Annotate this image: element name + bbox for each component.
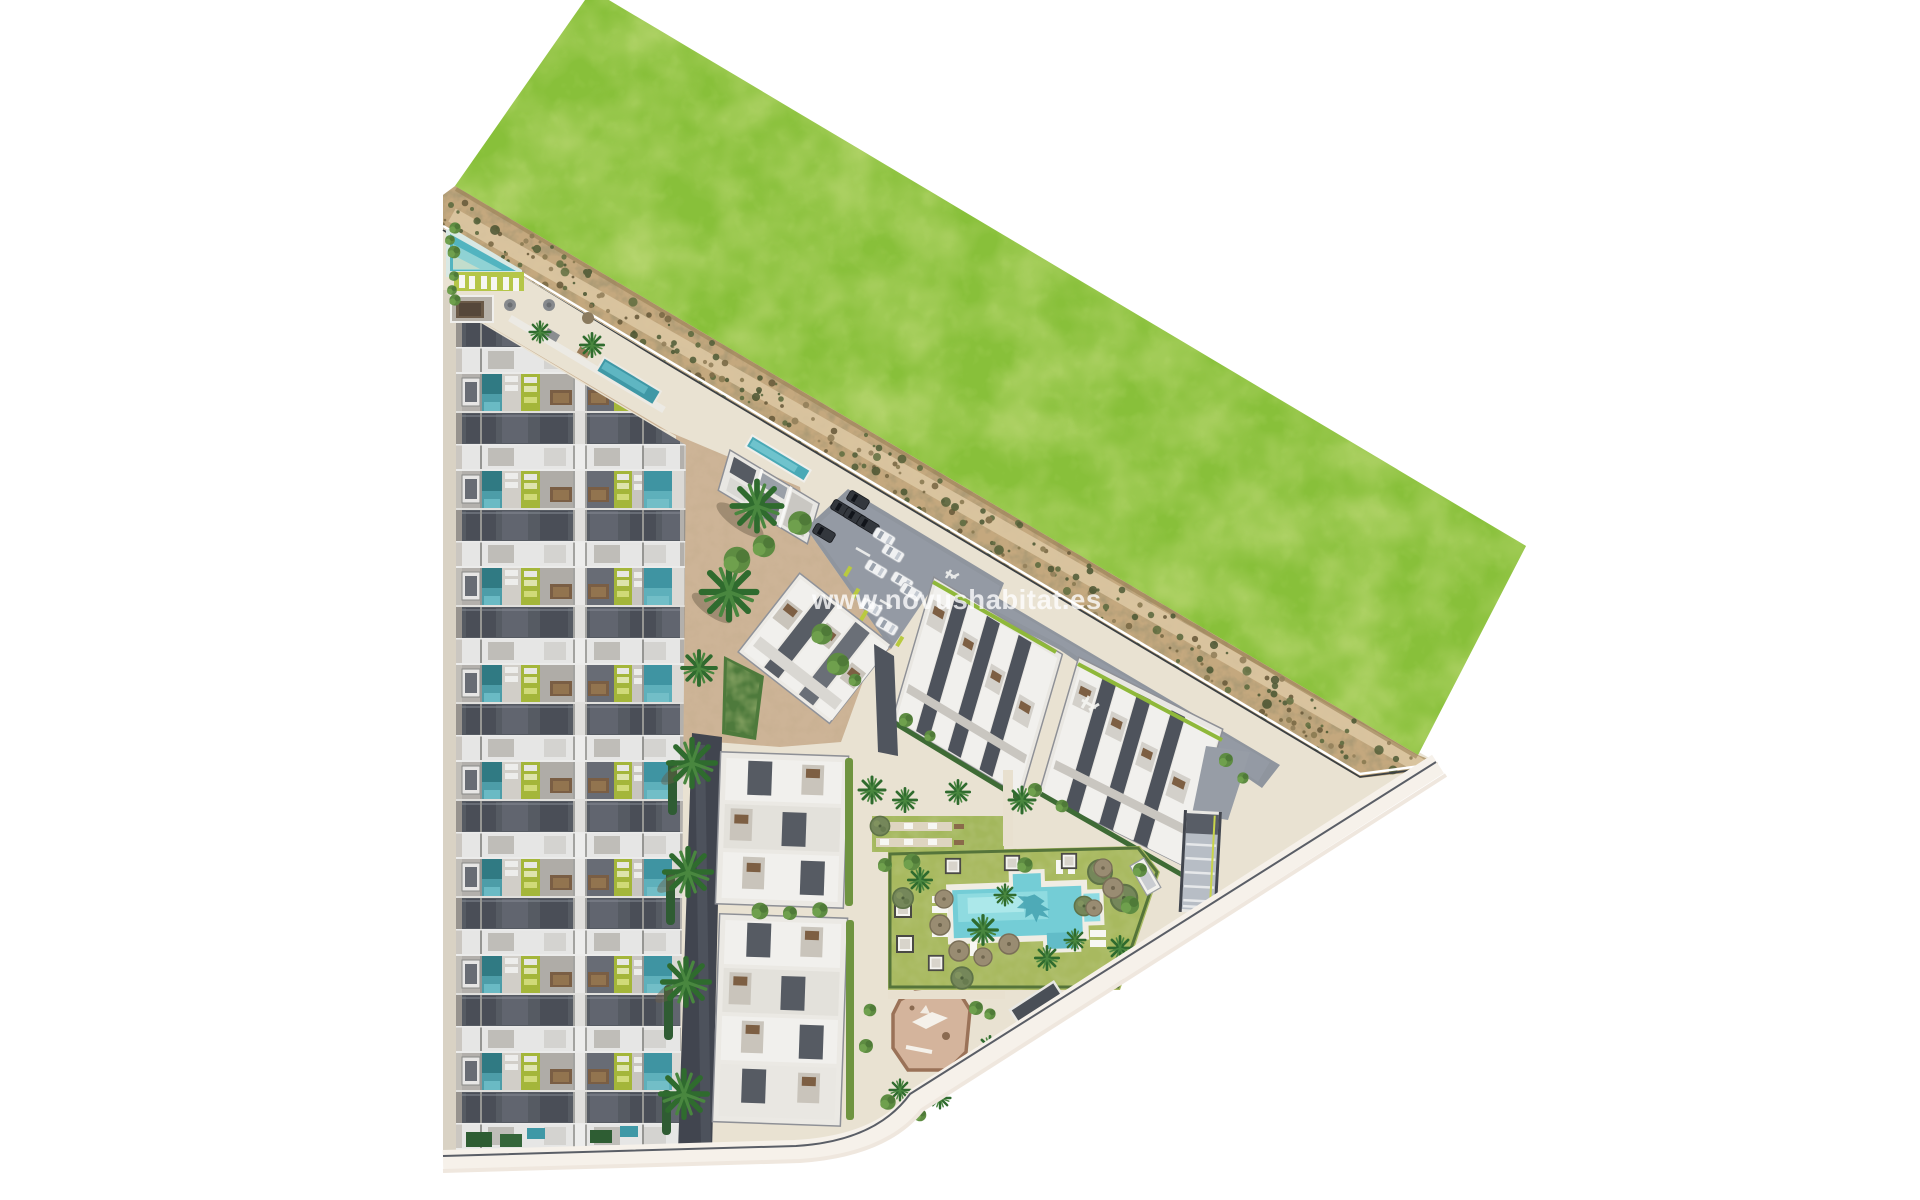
svg-text:www.novushabitat.es: www.novushabitat.es [811, 584, 1102, 615]
